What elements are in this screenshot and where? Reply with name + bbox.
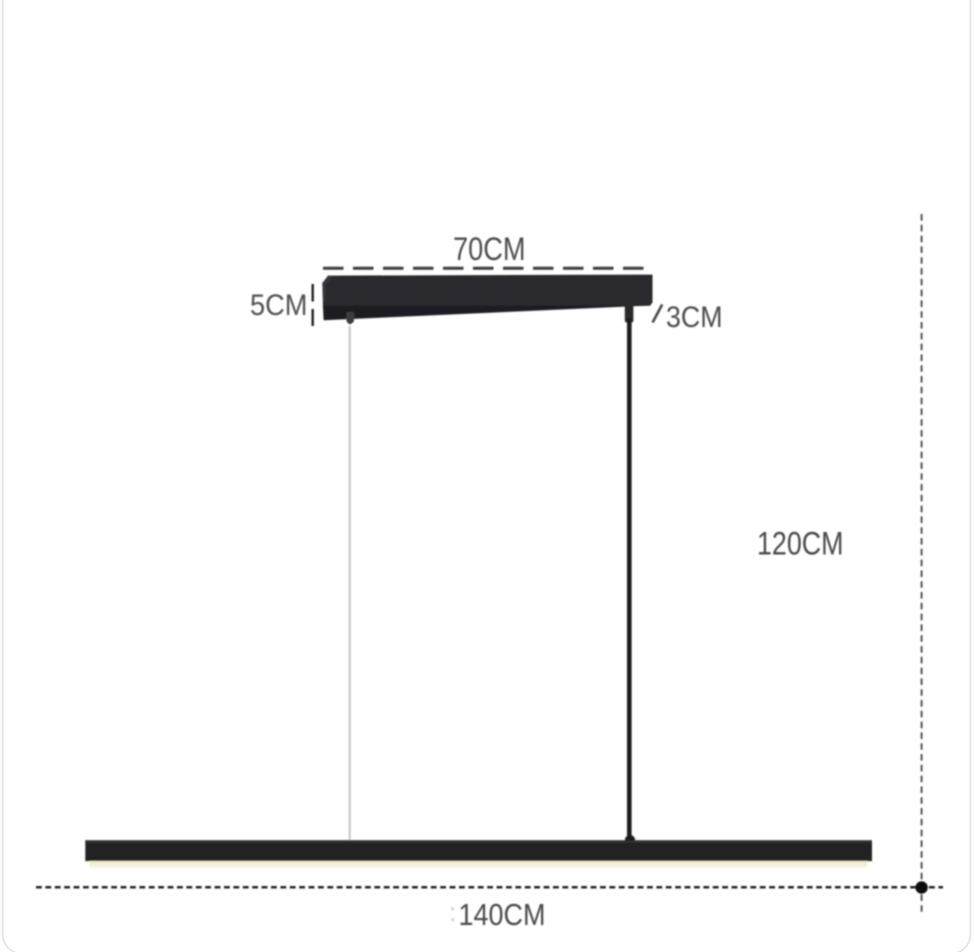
- svg-text:3CM: 3CM: [666, 301, 723, 334]
- svg-text:5CM: 5CM: [250, 289, 308, 322]
- svg-text::: :: [449, 897, 456, 927]
- svg-text:120CM: 120CM: [757, 526, 844, 562]
- svg-text:140CM: 140CM: [459, 897, 546, 932]
- svg-text:70CM: 70CM: [453, 231, 526, 267]
